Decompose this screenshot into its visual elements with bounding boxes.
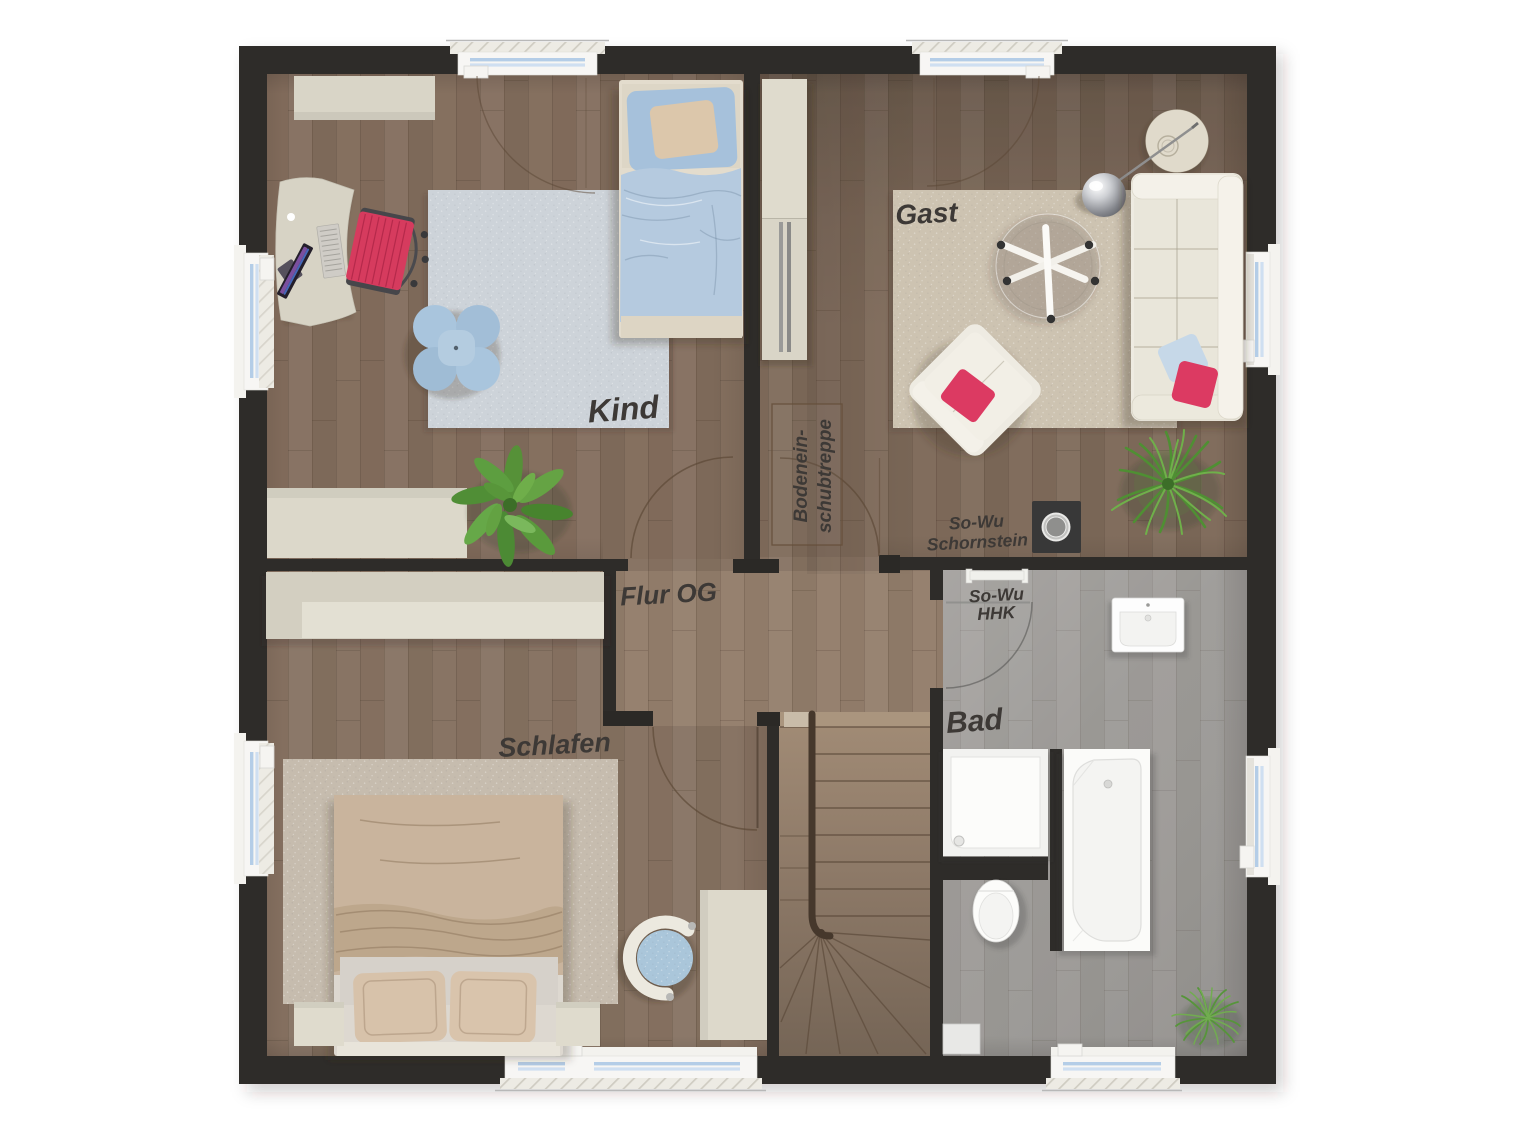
svg-text:Gast: Gast (895, 196, 960, 230)
svg-text:schubtreppe: schubtreppe (815, 419, 836, 533)
svg-text:Flur OG: Flur OG (619, 577, 717, 612)
svg-text:Schlafen: Schlafen (498, 727, 612, 763)
svg-text:Bad: Bad (945, 703, 1005, 740)
svg-text:HHK: HHK (977, 602, 1017, 624)
svg-text:Kind: Kind (587, 388, 662, 429)
svg-text:Bodenein-: Bodenein- (791, 430, 812, 523)
